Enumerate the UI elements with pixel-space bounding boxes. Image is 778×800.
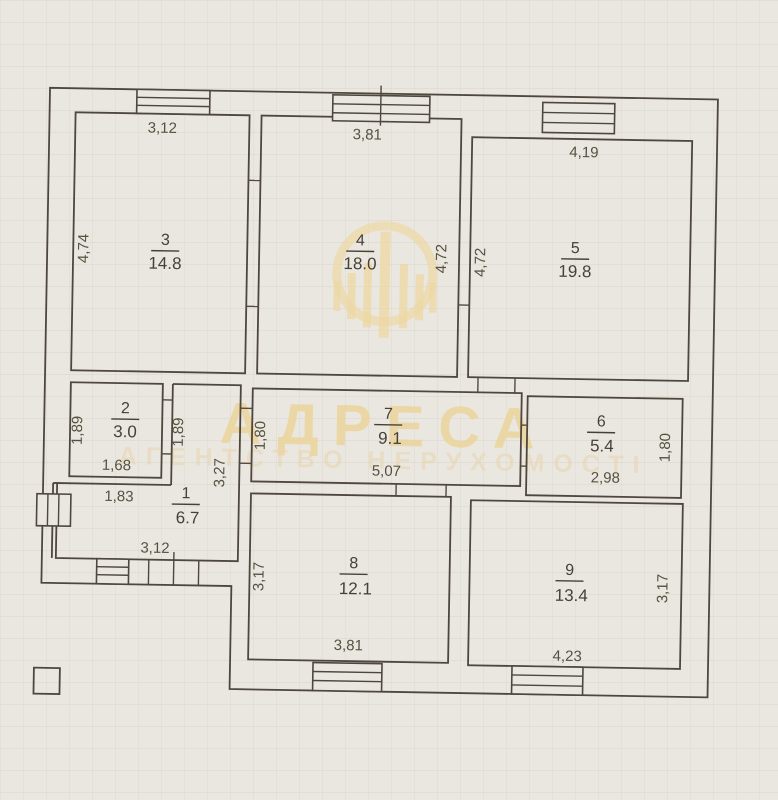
room5-number: 5: [571, 240, 580, 257]
dim-room4-top: 3,81: [353, 126, 382, 144]
room4-number: 4: [356, 232, 365, 249]
room6-area: 5.4: [590, 436, 614, 455]
dim-room7-bottom: 5,07: [372, 463, 401, 481]
room2-number: 2: [121, 400, 130, 417]
window-symbol-room3-top: [137, 89, 210, 114]
dim-room3-top: 3,12: [148, 120, 177, 138]
room5-area: 19.8: [558, 262, 591, 282]
floor-plan-svg: АДРЕСА АГЕНТСТВО НЕРУХОМОСТІ: [0, 0, 778, 800]
room9-number: 9: [565, 562, 574, 579]
room8-number: 8: [349, 555, 358, 572]
scanned-floor-plan-page: АДРЕСА АГЕНТСТВО НЕРУХОМОСТІ: [0, 0, 778, 800]
dim-room1-bottom: 3,12: [140, 539, 169, 557]
dim-room8-left: 3,17: [250, 562, 268, 591]
room3-area: 14.8: [148, 254, 181, 274]
dim-room8-bottom: 3,81: [334, 637, 363, 655]
dim-room6-bottom: 2,98: [591, 469, 620, 487]
window-symbol-room8-bottom: [313, 663, 382, 692]
dim-room9-right: 3,17: [654, 574, 672, 603]
room3-number: 3: [161, 232, 170, 249]
outer-wall: [40, 88, 718, 698]
room1-area: 6.7: [176, 508, 200, 527]
agency-logo-icon: [333, 225, 438, 339]
room7-number: 7: [384, 406, 393, 423]
dim-room2-right: 1,89: [170, 417, 188, 446]
chimney-vent-symbol-left-wall: [36, 494, 71, 527]
dim-room6-right: 1,80: [657, 433, 675, 462]
room1-number: 1: [181, 485, 190, 502]
window-symbol-room5-top: [542, 102, 615, 133]
room-2-bottom-double: [53, 483, 171, 485]
room9-area: 13.4: [555, 586, 588, 606]
dim-room4-right: 4,72: [433, 244, 451, 273]
window-symbol-room4-top: [332, 85, 430, 127]
room2-area: 3.0: [113, 422, 137, 441]
dim-room7-left: 1,80: [252, 421, 270, 450]
dim-room9-bottom: 4,23: [552, 648, 581, 666]
room8-area: 12.1: [339, 579, 372, 599]
dim-room1-right: 3,27: [211, 458, 229, 487]
dim-room5-top: 4,19: [569, 144, 598, 162]
room7-area: 9.1: [378, 429, 402, 448]
window-symbol-room9-bottom: [512, 666, 583, 695]
dim-room5-left: 4,72: [472, 248, 490, 277]
dim-room2-left: 1,89: [69, 416, 87, 445]
dim-room3-left: 4,74: [75, 234, 93, 263]
room-9-outline: [468, 500, 683, 669]
dim-room2-bottom: 1,68: [102, 457, 131, 475]
room4-area: 18.0: [343, 254, 376, 274]
detached-square-symbol: [33, 668, 59, 694]
dim-room1-top: 1,83: [104, 488, 133, 506]
room6-number: 6: [597, 413, 606, 430]
